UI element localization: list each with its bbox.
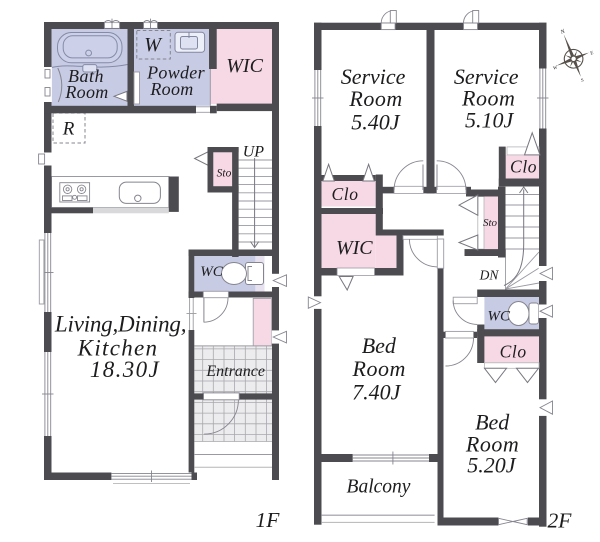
svg-text:UP: UP xyxy=(243,144,265,161)
svg-text:Sto: Sto xyxy=(483,217,498,229)
svg-text:DN: DN xyxy=(479,268,500,283)
svg-text:Clo: Clo xyxy=(500,342,527,362)
svg-text:Clo: Clo xyxy=(331,184,358,204)
svg-text:Bed: Bed xyxy=(362,333,397,358)
svg-text:R: R xyxy=(62,119,75,140)
svg-text:W: W xyxy=(144,34,163,56)
svg-text:WC: WC xyxy=(200,264,223,280)
svg-text:Clo: Clo xyxy=(510,157,537,177)
svg-text:5.40J: 5.40J xyxy=(351,110,401,135)
svg-text:Living,Dining,: Living,Dining, xyxy=(54,312,186,337)
svg-text:7.40J: 7.40J xyxy=(352,379,402,404)
svg-text:Entrance: Entrance xyxy=(205,363,265,380)
svg-text:Balcony: Balcony xyxy=(347,477,411,498)
svg-text:Room: Room xyxy=(348,86,402,111)
svg-text:1F: 1F xyxy=(256,508,281,532)
svg-text:18.30J: 18.30J xyxy=(90,357,161,382)
svg-text:Sto: Sto xyxy=(217,168,232,180)
svg-text:Room: Room xyxy=(149,79,193,99)
svg-text:Room: Room xyxy=(352,356,406,381)
svg-text:WIC: WIC xyxy=(226,55,263,77)
svg-text:2F: 2F xyxy=(548,509,573,533)
svg-text:WC: WC xyxy=(488,309,511,325)
svg-text:Room: Room xyxy=(64,82,108,102)
svg-text:WIC: WIC xyxy=(336,237,373,259)
svg-text:5.10J: 5.10J xyxy=(465,108,515,133)
svg-text:5.20J: 5.20J xyxy=(467,453,517,478)
